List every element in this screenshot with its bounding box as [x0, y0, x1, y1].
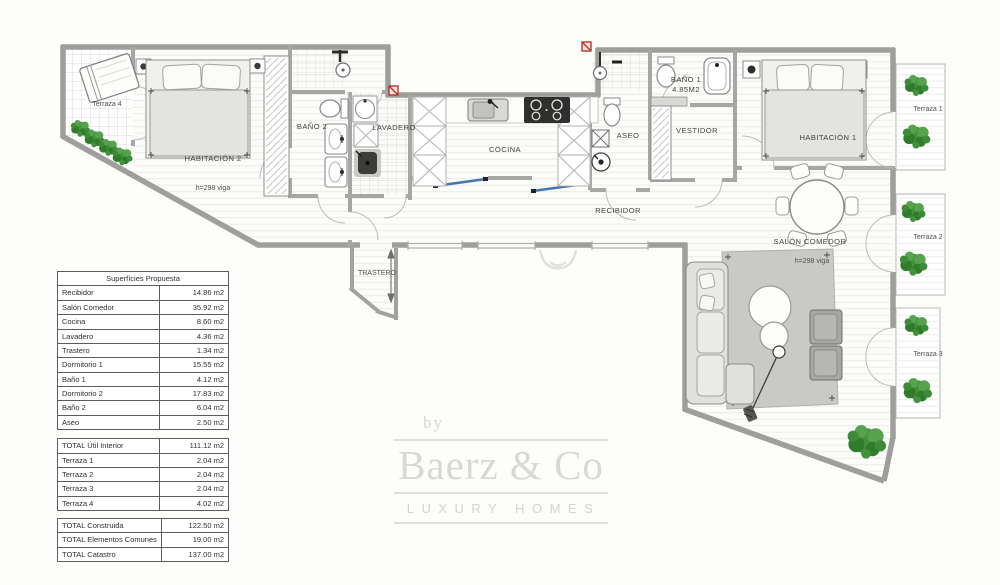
room-label-vestidor: VESTIDOR: [676, 126, 718, 135]
table-row: TOTAL Elementos Comunes19.00 m2: [58, 533, 229, 547]
table-row: Terraza 44.02 m2: [58, 496, 229, 510]
row-value: 2.50 m2: [160, 415, 229, 429]
row-label: Cocina: [58, 315, 160, 329]
room-label-lavadero: LAVADERO: [372, 123, 415, 132]
table-row: Baño 26.04 m2: [58, 401, 229, 415]
row-label: Trastero: [58, 343, 160, 357]
row-value: 14.86 m2: [160, 286, 229, 300]
room-label-habitacion1: HABITACIÓN 1: [800, 133, 857, 142]
bedroom1-furniture: [743, 60, 867, 160]
room-label-aseo: ASEO: [617, 131, 640, 140]
coffee-table-icon: [760, 322, 788, 350]
red-marker-icons: [389, 42, 591, 95]
row-label: TOTAL Construida: [58, 519, 162, 533]
row-value: 35.92 m2: [160, 300, 229, 314]
room-label-habitacion2: HABITACIÓN 2: [185, 154, 242, 163]
totals-global-table: TOTAL Construida122.50 m2TOTAL Elementos…: [57, 518, 229, 562]
row-value: 4.02 m2: [160, 496, 229, 510]
totals-util-table: TOTAL Útil Interior111.12 m2Terraza 12.0…: [57, 438, 229, 511]
living-area: [686, 249, 842, 422]
table-row: Dormitorio 217.83 m2: [58, 387, 229, 401]
row-value: 6.04 m2: [160, 401, 229, 415]
armchair-icon: [810, 346, 842, 380]
row-label: Recibidor: [58, 286, 160, 300]
laundry-fixtures: [353, 96, 381, 177]
toilet-icon: [320, 99, 348, 118]
logo-name: Baerz & Co: [368, 442, 634, 489]
room-label-viga2: h=298 viga: [196, 185, 231, 192]
room-label-bano2: BAÑO 2: [297, 122, 327, 131]
row-label: Salón Comedor: [58, 300, 160, 314]
bathtub-icon: [704, 58, 730, 94]
table-row: Trastero1.34 m2: [58, 343, 229, 357]
row-label: Terraza 4: [58, 496, 160, 510]
room-label-viga1: h=298 viga: [795, 258, 830, 265]
logo-divider: [394, 522, 608, 524]
agency-logo: by Baerz & Co LUXURY HOMES: [368, 413, 634, 524]
bed-icon: [146, 60, 250, 158]
coffee-table-icon: [749, 286, 791, 328]
table-row: Dormitorio 115.55 m2: [58, 358, 229, 372]
row-value: 122.50 m2: [161, 519, 228, 533]
room-label-cocina: COCINA: [489, 145, 521, 154]
windows: [408, 240, 648, 250]
row-value: 2.04 m2: [160, 453, 229, 467]
row-value: 4.12 m2: [160, 372, 229, 386]
table-row: TOTAL Catastro137.00 m2: [58, 547, 229, 561]
kitchen-sink-icon: [468, 99, 508, 121]
room-label-recibidor: RECIBIDOR: [595, 206, 641, 215]
table-row: TOTAL Construida122.50 m2: [58, 519, 229, 533]
row-label: Lavadero: [58, 329, 160, 343]
row-label: Baño 2: [58, 401, 160, 415]
room-label-bano1-area: 4.85M2: [672, 85, 700, 94]
washer-icon: [354, 149, 381, 177]
row-label: Terraza 1: [58, 453, 160, 467]
shelf-icon: [651, 97, 687, 106]
row-label: Baño 1: [58, 372, 160, 386]
table-row: Aseo2.50 m2: [58, 415, 229, 429]
row-label: Dormitorio 1: [58, 358, 160, 372]
table-row: Lavadero4.36 m2: [58, 329, 229, 343]
table-row: Terraza 32.04 m2: [58, 482, 229, 496]
row-label: Dormitorio 2: [58, 387, 160, 401]
room-label-terraza3: Terraza 3: [913, 351, 942, 358]
row-value: 2.04 m2: [160, 467, 229, 481]
row-value: 137.00 m2: [161, 547, 228, 561]
logo-by-text: by: [368, 413, 634, 439]
logo-divider: [394, 439, 608, 441]
row-label: TOTAL Elementos Comunes: [58, 533, 162, 547]
stove-icon: [524, 97, 570, 123]
bed-icon: [762, 60, 866, 160]
dining-table-icon: [790, 180, 844, 234]
row-value: 4.36 m2: [160, 329, 229, 343]
floorplan-page: Terraza 4 HABITACIÓN 2 h=298 viga BAÑO 2…: [0, 0, 1000, 585]
row-value: 1.34 m2: [160, 343, 229, 357]
table-row: Cocina8.60 m2: [58, 315, 229, 329]
room-label-terraza2: Terraza 2: [913, 234, 942, 241]
sink-icon: [325, 157, 347, 187]
table-row: Baño 14.12 m2: [58, 372, 229, 386]
row-label: TOTAL Útil Interior: [58, 439, 160, 453]
room-label-bano1: BAÑO 1: [671, 75, 701, 84]
row-label: Terraza 2: [58, 467, 160, 481]
row-value: 15.55 m2: [160, 358, 229, 372]
sink-icon: [325, 124, 347, 154]
hands-watermark-icon: [540, 250, 576, 268]
surface-tables: Superfícies Propuesta Recibidor14.86 m2S…: [57, 271, 229, 568]
table-row: Terraza 12.04 m2: [58, 453, 229, 467]
table-row: TOTAL Útil Interior111.12 m2: [58, 439, 229, 453]
row-value: 8.60 m2: [160, 315, 229, 329]
room-label-terraza1: Terraza 1: [913, 106, 942, 113]
row-value: 19.00 m2: [161, 533, 228, 547]
washer-icon: [592, 153, 610, 171]
proposed-surfaces-table: Superfícies Propuesta Recibidor14.86 m2S…: [57, 271, 229, 430]
armchair-icon: [810, 310, 842, 344]
row-label: TOTAL Catastro: [58, 547, 162, 561]
row-value: 17.83 m2: [160, 387, 229, 401]
room-label-terraza4: Terraza 4: [92, 101, 121, 108]
table-row: Salón Comedor35.92 m2: [58, 300, 229, 314]
toilet-icon: [604, 98, 620, 126]
room-label-trastero: TRASTERO: [358, 270, 397, 277]
row-value: 111.12 m2: [160, 439, 229, 453]
row-label: Terraza 3: [58, 482, 160, 496]
row-label: Aseo: [58, 415, 160, 429]
room-label-salon: SALÓN COMEDOR: [774, 237, 847, 246]
table-row: Terraza 22.04 m2: [58, 467, 229, 481]
logo-tagline: LUXURY HOMES: [368, 494, 634, 522]
table-row: Recibidor14.86 m2: [58, 286, 229, 300]
table-title: Superfícies Propuesta: [58, 272, 229, 286]
row-value: 2.04 m2: [160, 482, 229, 496]
